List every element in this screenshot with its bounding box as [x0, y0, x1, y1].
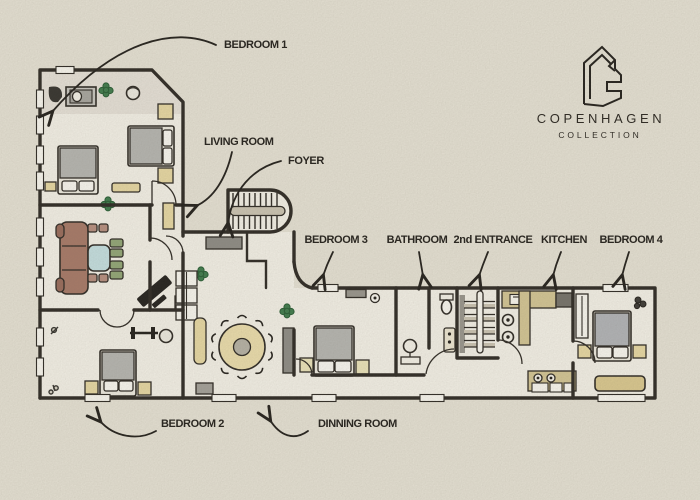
- bed: [58, 146, 98, 194]
- ceiling-light: [371, 294, 380, 303]
- nightstand: [85, 381, 98, 394]
- label-bedroom-1: BEDROOM 1: [224, 39, 287, 51]
- nightstand: [356, 360, 369, 374]
- coffee-table: [88, 245, 110, 271]
- sideboard: [194, 318, 206, 364]
- bed: [314, 326, 354, 376]
- bed: [593, 311, 631, 361]
- label-bathroom: BATHROOM: [387, 234, 448, 246]
- label-dining-room: DINNING ROOM: [318, 418, 397, 430]
- kitchen-counter-side: [519, 291, 530, 345]
- nightstand: [158, 168, 173, 183]
- floorplan-svg: BEDROOM 1 LIVING ROOM FOYER BEDROOM 3 BA…: [0, 0, 700, 500]
- label-bedroom-2: BEDROOM 2: [161, 418, 224, 430]
- pouf: [127, 87, 140, 100]
- bench: [112, 183, 140, 192]
- label-foyer: FOYER: [288, 155, 324, 167]
- bench: [595, 376, 645, 391]
- label-living-room: LIVING ROOM: [204, 136, 274, 148]
- toilet: [440, 294, 453, 314]
- shelving-unit: [176, 271, 197, 320]
- cabinet: [196, 383, 213, 394]
- sofa: [56, 222, 88, 294]
- logo-title: COPENHAGEN: [537, 111, 665, 126]
- logo-subtitle: COLLECTION: [558, 130, 641, 140]
- dresser: [66, 87, 96, 106]
- console-table: [206, 237, 242, 249]
- bed: [100, 350, 136, 396]
- label-kitchen: KITCHEN: [541, 234, 588, 246]
- wardrobe: [576, 294, 588, 338]
- nightstand: [158, 104, 173, 119]
- hall-panel: [163, 203, 174, 229]
- wall-vent: [346, 290, 366, 298]
- label-2nd-entrance: 2nd ENTRANCE: [454, 234, 533, 246]
- kitchen-sink-counter: [528, 371, 576, 392]
- label-bedroom-4: BEDROOM 4: [599, 234, 663, 246]
- bed-2: [128, 126, 174, 166]
- nightstand: [633, 345, 646, 358]
- label-bedroom-3: BEDROOM 3: [304, 234, 367, 246]
- stair-railing: [477, 291, 483, 353]
- nightstand: [138, 382, 151, 395]
- nightstand: [578, 345, 591, 358]
- nightstand: [45, 182, 56, 191]
- floorplan-page: BEDROOM 1 LIVING ROOM FOYER BEDROOM 3 BA…: [0, 0, 700, 500]
- stove: [556, 293, 572, 307]
